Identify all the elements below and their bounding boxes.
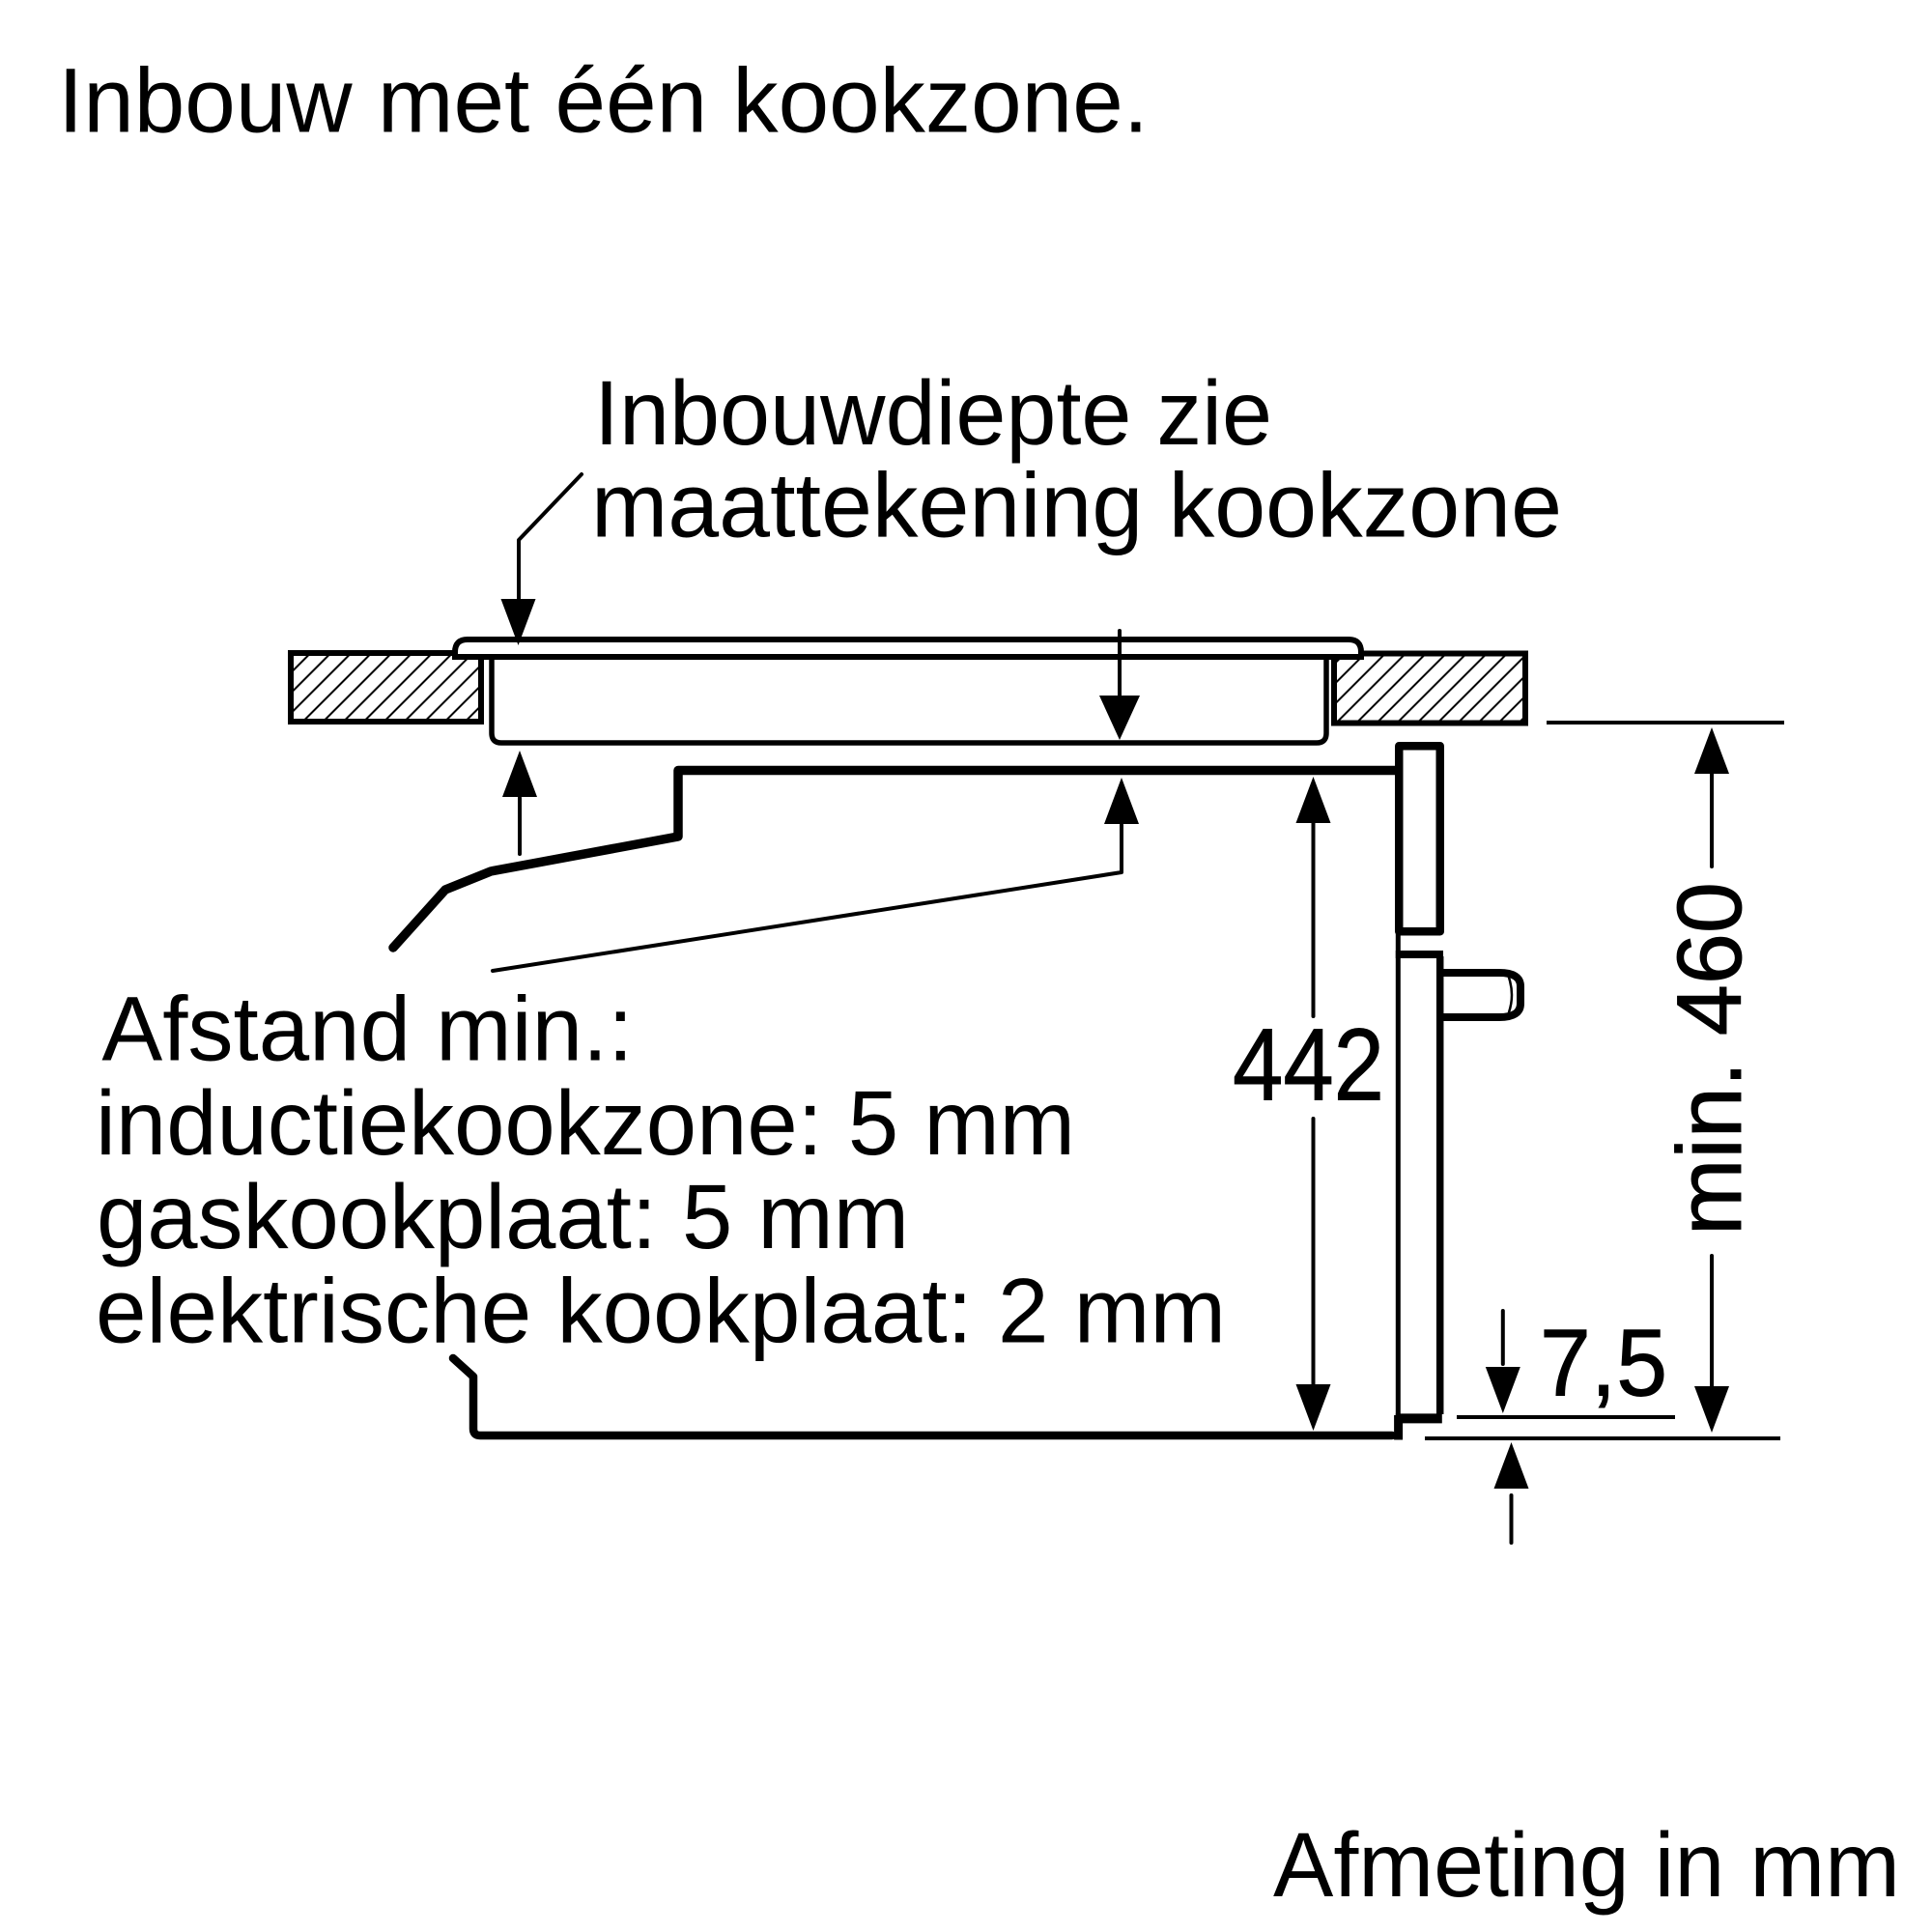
svg-text:Afstand min.:: Afstand min.: xyxy=(101,978,633,1080)
svg-text:min. 460: min. 460 xyxy=(1659,882,1761,1236)
svg-text:Inbouwdiepte zie: Inbouwdiepte zie xyxy=(594,362,1272,465)
svg-text:442: 442 xyxy=(1233,1009,1384,1122)
svg-text:inductiekookzone: 5 mm: inductiekookzone: 5 mm xyxy=(96,1072,1075,1175)
svg-text:Inbouw met één kookzone.: Inbouw met één kookzone. xyxy=(58,50,1149,153)
svg-text:Afmeting in mm: Afmeting in mm xyxy=(1273,1814,1900,1917)
svg-text:gaskookplaat: 5 mm: gaskookplaat: 5 mm xyxy=(97,1166,909,1268)
svg-text:elektrische kookplaat: 2 mm: elektrische kookplaat: 2 mm xyxy=(96,1261,1226,1363)
svg-text:maattekening kookzone: maattekening kookzone xyxy=(591,454,1562,556)
svg-text:7,5: 7,5 xyxy=(1540,1309,1667,1415)
